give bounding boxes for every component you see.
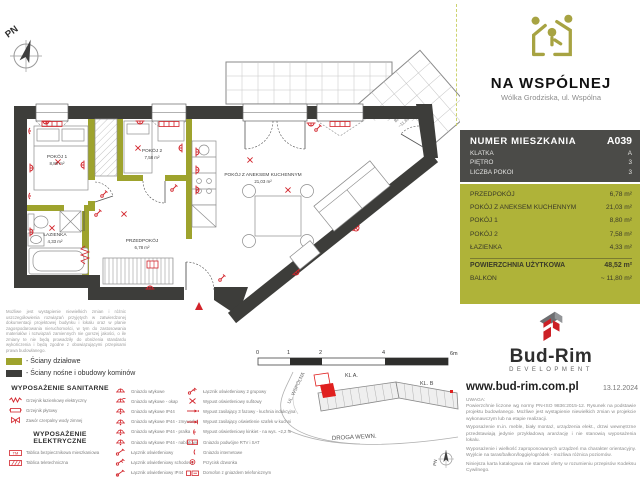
area-row: PRZEDPOKÓJ6,78 m² — [470, 191, 632, 204]
developer-name: Bud-Rim — [462, 347, 640, 366]
staircase-value: A — [628, 150, 632, 157]
area-row: ŁAZIENKA4,33 m² — [470, 244, 632, 257]
unit-header: NUMER MIESZKANIA A039 KLATKAA PIĘTRO3 LI… — [460, 130, 640, 182]
dashed-divider — [456, 4, 457, 126]
project-location: Wólka Grodziska, ul. Wspólna — [462, 93, 640, 102]
unit-number-value: A039 — [607, 135, 632, 147]
area-row: POKÓJ 27,58 m² — [470, 231, 632, 244]
partition-wall-swatch — [6, 358, 22, 365]
room2-area: 7,58 m² — [145, 155, 160, 160]
fuse-panel-icon: TM — [8, 449, 23, 457]
hall-wardrobe — [103, 258, 173, 284]
floor-label: PIĘTRO — [470, 159, 493, 166]
switch-2group-icon — [185, 387, 200, 395]
socket-icon — [113, 387, 128, 395]
note-paragraph: Niniejsza karta katalogowa nie stanowi o… — [466, 462, 636, 475]
cold-water-valve-icon — [8, 416, 23, 424]
entrance-arrow-icon — [195, 302, 203, 310]
internet-socket-icon — [185, 448, 200, 456]
website-url: www.bud-rim.com.pl — [466, 381, 579, 393]
stair-a-label: KL A. — [345, 373, 358, 379]
sanitary-legend: WYPOSAŻENIE SANITARNE Grzejnik łazienkow… — [8, 382, 112, 468]
svg-text:0: 0 — [256, 350, 259, 356]
balcony-area-row: BALKON~ 11,80 m² — [470, 275, 632, 288]
room1-label: POKÓJ 1 — [47, 153, 68, 160]
cabinet-light-outlet-icon — [185, 418, 200, 426]
hall-area: 6,78 m² — [135, 245, 150, 250]
bath-label: ŁAZIENKA — [43, 232, 67, 238]
area-row: POKÓJ 18,80 m² — [470, 217, 632, 230]
ceiling-light-outlet-icon — [185, 397, 200, 405]
telecom-panel-icon — [8, 459, 23, 467]
scale-end-label: 6m — [450, 351, 458, 357]
areas-table: PRZEDPOKÓJ6,78 m² POKÓJ Z ANEKSEM KUCHEN… — [460, 184, 640, 304]
switch-ip44-icon — [113, 469, 128, 477]
project-logo: NA WSPÓLNEJ Wólka Grodziska, ul. Wspólna — [462, 12, 640, 102]
unit-number-label: NUMER MIESZKANIA — [470, 136, 576, 147]
issue-date: 13.12.2024 — [603, 385, 638, 392]
total-area-row: POWIERZCHNIA UŻYTKOWA48,52 m² — [470, 262, 632, 275]
disclaimer-note: UWAGA: Powierzchnie liczone wg normy PN-… — [466, 398, 636, 477]
areas-separator — [470, 258, 632, 259]
panel-radiator-icon — [8, 406, 23, 414]
closet — [95, 119, 117, 176]
developer-logo: Bud-Rim DEVELOPMENT — [462, 308, 640, 373]
bearing-wall-swatch — [6, 370, 22, 377]
bath-area: 4,33 m² — [48, 239, 63, 244]
bearing-wall-label: - Ściany nośne i obudowy kominów — [26, 370, 135, 377]
partition-wall-label: - Ściany działowe — [26, 358, 80, 365]
scale-bar: 0 1 2 4 6m — [256, 350, 458, 365]
note-title: UWAGA: — [466, 398, 636, 403]
intercom-icon — [185, 469, 200, 477]
toilet — [28, 214, 34, 230]
rtv-sat-socket-icon — [185, 438, 200, 446]
project-name: NA WSPÓLNEJ — [462, 75, 640, 92]
info-panel: NA WSPÓLNEJ Wólka Grodziska, ul. Wspólna… — [462, 0, 640, 480]
light-switch-icon — [113, 448, 128, 456]
room1-area: 8,80 m² — [50, 161, 65, 166]
svg-text:1: 1 — [287, 350, 290, 356]
note-paragraph: Powierzchnie liczone wg normy PN-ISO 983… — [466, 404, 636, 423]
rooms-count-label: LICZBA POKOI — [470, 169, 513, 176]
area-row: POKÓJ Z ANEKSEM KUCHENNYM21,03 m² — [470, 204, 632, 217]
socket-ip44-icon — [113, 407, 128, 415]
note-paragraph: Wyposażenie m.in. meble, biały montaż, u… — [466, 425, 636, 444]
website-row: www.bud-rim.com.pl 13.12.2024 — [466, 381, 638, 393]
electrical-title: WYPOSAŻENIE ELEKTRYCZNE — [8, 431, 112, 445]
wall-lamp-outlet-icon — [185, 428, 200, 436]
living-area: 21,03 m² — [254, 179, 272, 184]
electric-towel-radiator-icon — [8, 396, 23, 404]
stair-switch-icon — [113, 458, 128, 466]
svg-text:TM: TM — [13, 450, 19, 455]
compass-label: PN — [3, 24, 20, 41]
house-logo-icon — [519, 12, 583, 66]
doorbell-button-icon — [185, 458, 200, 466]
stair-b-label: KL. B — [420, 381, 434, 387]
note-paragraph: Wyposażenie i wielkość zaproponowanych u… — [466, 447, 636, 460]
fuse-box-icon — [147, 261, 158, 268]
socket-ip44-dishwasher-icon — [113, 418, 128, 426]
living-label: POKÓJ Z ANEKSEM KUCHENNYM — [224, 171, 301, 178]
svg-text:4: 4 — [382, 350, 385, 356]
north-compass: PN — [3, 24, 42, 72]
socket-hood-icon — [113, 397, 128, 405]
rooms-count-value: 3 — [628, 169, 632, 176]
electrical-legend-col1: Gniazdo wtykowe Gniazdo wtykowe - okap G… — [113, 386, 185, 478]
north-arrow-icon — [20, 38, 36, 63]
site-compass-label: PN — [432, 459, 438, 466]
road-label: DROGA WEWN. — [332, 434, 377, 442]
desk-room2 — [158, 121, 184, 141]
legend-disclaimer: Możliwe jest wystąpienie niewielkich zmi… — [6, 309, 126, 354]
wall-legend: - Ściany działowe - Ściany nośne i obudo… — [6, 355, 135, 379]
svg-text:2: 2 — [319, 350, 322, 356]
catalog-sheet: PN BALKON ~11,80 m² — [0, 0, 640, 480]
room2-label: POKÓJ 2 — [142, 147, 163, 154]
socket-ip44-counter-icon — [113, 438, 128, 446]
developer-subtitle: DEVELOPMENT — [462, 367, 640, 373]
budrim-logo-icon — [532, 308, 570, 342]
electrical-legend-col2: Łącznik oświetleniowy 2 grupowy Wypust o… — [185, 386, 315, 478]
site-compass — [438, 450, 454, 468]
hall-label: PRZEDPOKÓJ — [126, 237, 159, 244]
dining-table — [255, 196, 301, 236]
staircase-label: KLATKA — [470, 150, 494, 157]
floor-value: 3 — [628, 159, 632, 166]
socket-ip44-washer-icon — [113, 428, 128, 436]
power-outlet-3phase-icon — [185, 407, 200, 415]
sanitary-title: WYPOSAŻENIE SANITARNE — [8, 385, 112, 392]
